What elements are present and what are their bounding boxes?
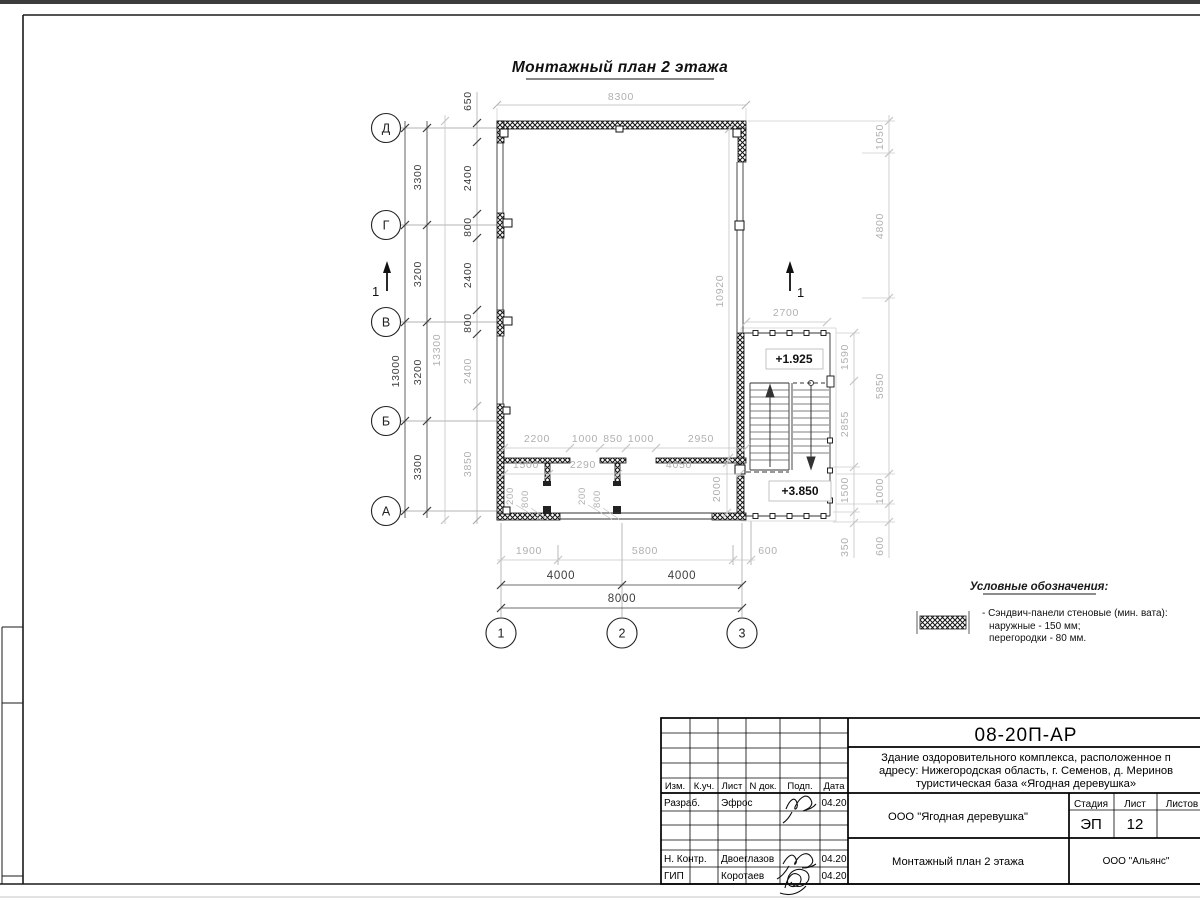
- axis-lines: [400, 128, 751, 617]
- dim-label: 800: [592, 490, 603, 508]
- section-label: 1: [797, 285, 804, 300]
- tb-col-header: Дата: [823, 781, 845, 792]
- section-mark-right: 1: [786, 261, 804, 300]
- tb-date: 04.20: [821, 798, 846, 809]
- tb-col-header: N док.: [749, 781, 776, 792]
- axis-row-label: Б: [382, 415, 390, 429]
- dim-label: 8000: [608, 593, 636, 605]
- project-line: Здание оздоровительного комплекса, распо…: [881, 752, 1171, 764]
- dim-label: 600: [874, 536, 886, 556]
- tb-name: Коротаев: [721, 871, 764, 882]
- dim-label: 4050: [666, 459, 692, 471]
- column-posts: [500, 126, 745, 514]
- elevation-lower: +3.850: [781, 484, 818, 498]
- title-block: Изм. К.уч. Лист N док. Подп. Дата Разраб…: [661, 718, 1200, 895]
- dim-label: 1000: [572, 433, 598, 445]
- dim-label: 1500: [513, 459, 539, 471]
- dim-label: 3850: [462, 451, 474, 477]
- tb-col-header: Изм.: [665, 781, 685, 792]
- dim-label: 2400: [462, 165, 474, 191]
- dim-hall-height: [725, 125, 733, 462]
- dim-label: 800: [462, 217, 474, 237]
- dim-label: 5850: [874, 373, 886, 399]
- drawing-sheet: Монтажный план 2 этажа: [0, 0, 1200, 900]
- dim-label: 4800: [874, 213, 886, 239]
- dim-label: 600: [758, 545, 778, 557]
- dim-label: 5800: [632, 545, 658, 557]
- dim-label: 3200: [412, 261, 424, 287]
- dim-label: 3300: [412, 454, 424, 480]
- section-mark-left: 1: [372, 261, 391, 299]
- dim-label: 800: [520, 490, 531, 508]
- axis-row-label: Д: [382, 122, 391, 136]
- sheets-label: Листов: [1166, 799, 1199, 810]
- dim-label: 13300: [431, 334, 443, 367]
- dim-label: 3300: [412, 164, 424, 190]
- legend: Условные обозначения: - Сэндвич-панели с…: [917, 581, 1168, 644]
- legend-item-line: перегородки - 80 мм.: [989, 633, 1086, 644]
- dim-label: 1590: [839, 344, 851, 370]
- dim-label: 800: [462, 313, 474, 333]
- dim-interior-top: [500, 444, 750, 452]
- dim-label: 10920: [714, 275, 726, 308]
- dim-bottom-spans: [497, 581, 746, 589]
- dim-label: 2400: [462, 262, 474, 288]
- tb-date: 04.20: [821, 871, 846, 882]
- tb-role: Н. Контр.: [664, 854, 707, 865]
- dim-label: 1050: [874, 124, 886, 150]
- dim-bottom-total: [497, 604, 746, 612]
- legend-title: Условные обозначения:: [970, 581, 1109, 593]
- tb-name: Эфрос: [721, 797, 753, 809]
- dim-stair-width: [742, 318, 831, 326]
- dim-label: 650: [462, 91, 474, 111]
- dim-label: 1000: [628, 433, 654, 445]
- sheet-label: Лист: [1124, 799, 1146, 810]
- project-line: туристическая база «Ягодная деревушка»: [916, 778, 1136, 790]
- stair-block: +1.925 +3.850: [744, 331, 834, 519]
- tb-role: ГИП: [664, 871, 684, 882]
- stair-treads: [750, 390, 829, 460]
- company-name: ООО "Альянс": [1103, 856, 1170, 867]
- dim-label: 2400: [462, 358, 474, 384]
- tb-col-header: Подп.: [787, 781, 812, 792]
- dim-room-depth: [723, 459, 731, 517]
- dim-label: 1000: [874, 478, 886, 504]
- dim-label: 4000: [668, 570, 696, 582]
- dim-label: 4000: [547, 570, 575, 582]
- dim-right-outer: [885, 115, 893, 558]
- dim-label: 2000: [711, 476, 723, 502]
- tb-role: Разраб.: [664, 797, 700, 809]
- dim-interior-bottom: [500, 470, 744, 478]
- frame-margin-marks: [2, 627, 23, 884]
- dim-label: 2855: [839, 411, 851, 437]
- dim-left-inner: [473, 92, 481, 524]
- dim-label: 350: [839, 537, 851, 557]
- client-name: ООО "Ягодная деревушка": [888, 811, 1028, 823]
- drawing-title: Монтажный план 2 этажа: [892, 856, 1025, 868]
- sheet-svg: Монтажный план 2 этажа: [0, 0, 1200, 900]
- sheet-value: 12: [1127, 816, 1144, 833]
- screen-top-edge: [0, 0, 1200, 4]
- tb-col-header: Лист: [722, 781, 743, 792]
- dim-bottom-ref: [497, 556, 755, 564]
- project-line: адресу: Нижегородская область, г. Семено…: [879, 765, 1173, 777]
- tb-col-header: К.уч.: [694, 781, 715, 792]
- floor-plan: Монтажный план 2 этажа: [372, 59, 896, 648]
- dim-label: 8300: [608, 91, 634, 103]
- axis-row-label: В: [382, 316, 390, 330]
- dim-label: 1900: [516, 545, 542, 557]
- dim-label: 13000: [390, 355, 402, 388]
- dim-label: 2700: [773, 307, 799, 319]
- dim-label: 2290: [570, 459, 596, 471]
- doc-number: 08-20П-АР: [975, 725, 1078, 746]
- section-label: 1: [372, 284, 379, 299]
- axis-row-label: А: [382, 505, 391, 519]
- dim-label: 200: [577, 487, 588, 505]
- tb-name: Двоеглазов: [721, 854, 774, 865]
- axis-col-label: 1: [498, 627, 505, 641]
- legend-item-line: - Сэндвич-панели стеновые (мин. вата):: [982, 608, 1168, 619]
- dim-label: 2950: [688, 433, 714, 445]
- dim-left-ref: [441, 115, 449, 524]
- axis-col-label: 3: [739, 627, 746, 641]
- stage-label: Стадия: [1074, 799, 1108, 810]
- legend-item-line: наружные - 150 мм;: [989, 621, 1080, 632]
- dim-label: 1500: [839, 477, 851, 503]
- axis-col-label: 2: [619, 627, 626, 641]
- dim-label: 3200: [412, 359, 424, 385]
- dim-label: 850: [603, 433, 623, 445]
- plan-title: Монтажный план 2 этажа: [512, 59, 728, 76]
- tb-date: 04.20: [821, 854, 846, 865]
- dim-right-inner: [850, 329, 858, 558]
- elevation-upper: +1.925: [775, 352, 812, 366]
- legend-wall-symbol: [917, 611, 969, 634]
- dim-label: 200: [505, 487, 516, 505]
- dim-label: 2200: [524, 433, 550, 445]
- axis-row-label: Г: [383, 219, 390, 233]
- stage-value: ЭП: [1080, 816, 1102, 833]
